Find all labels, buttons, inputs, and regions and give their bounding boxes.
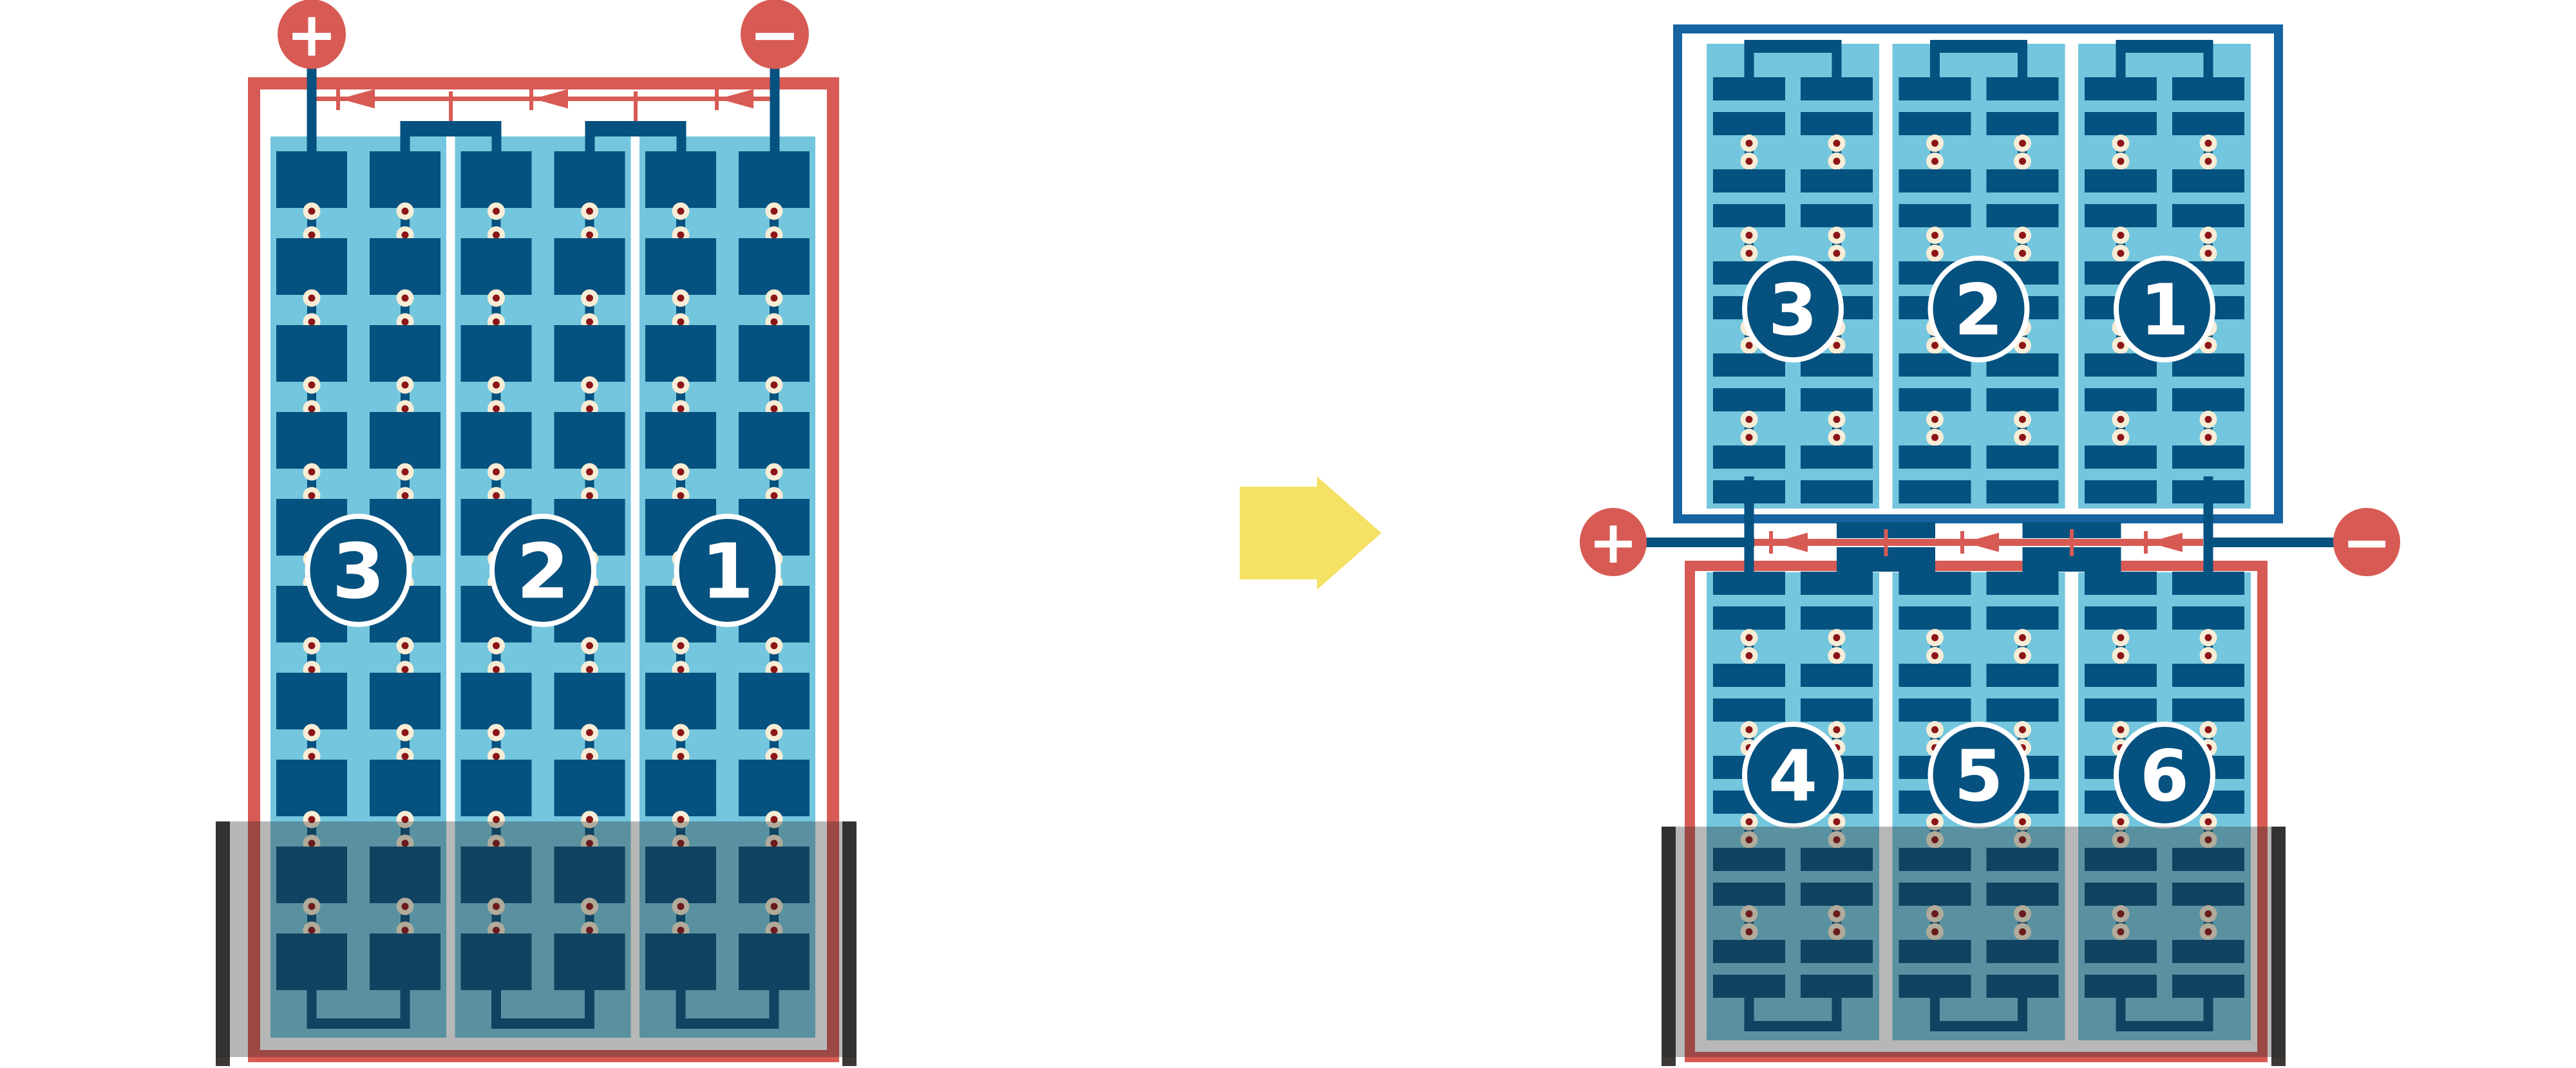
solder-dot-core (493, 642, 500, 650)
string-label: 3 (1745, 258, 1841, 360)
solar-half-cell (1713, 169, 1785, 192)
solar-cell (461, 151, 532, 208)
solar-half-cell (1987, 169, 2059, 192)
diode-cathode-bar (2144, 531, 2148, 554)
solder-dot-core (677, 232, 685, 239)
solder-dot-core (1746, 232, 1753, 239)
solar-half-cell (1801, 388, 1873, 411)
solar-cell (645, 412, 716, 469)
solder-dot-core (2019, 158, 2026, 165)
solder-dot-core (402, 295, 409, 302)
solder-dot-core (771, 406, 778, 413)
bridge-leg (585, 136, 595, 153)
solder-dot-core (1931, 416, 1938, 423)
solar-half-cell (1899, 664, 1971, 687)
solar-half-cell (1801, 77, 1873, 100)
solder-dot-core (2205, 140, 2212, 147)
solder-dot-core (2117, 342, 2125, 349)
solder-dot-core (2019, 818, 2026, 825)
solar-half-cell (1987, 664, 2059, 687)
solder-dot-core (402, 642, 409, 650)
string-interconnect-bridge (1930, 40, 2027, 53)
string-label-number: 4 (1768, 735, 1818, 818)
solar-cell (370, 412, 440, 469)
solder-dot-core (677, 469, 685, 476)
diagram-stage: 321+−321456+− (0, 0, 2576, 1068)
solar-half-cell (2085, 698, 2157, 722)
solar-half-cell (1987, 698, 2059, 722)
solar-cell (739, 325, 810, 382)
solder-dot-core (2117, 416, 2125, 423)
solar-cell (276, 412, 347, 469)
positive-terminal: + (1580, 508, 1647, 577)
solder-dot-core (402, 469, 409, 476)
solar-half-cell (1801, 480, 1873, 503)
solder-dot-core (493, 232, 500, 239)
solar-half-cell (1713, 698, 1785, 722)
negative-terminal-glyph: − (749, 0, 800, 70)
solder-dot-core (2117, 250, 2125, 257)
solder-dot-core (308, 666, 316, 673)
solder-dot-core (402, 208, 409, 215)
bridge-leg (2204, 52, 2213, 77)
solder-dot-core (586, 319, 593, 326)
solder-dot-core (493, 469, 500, 476)
string-label: 4 (1745, 724, 1841, 826)
bridge-leg (2116, 52, 2126, 77)
solder-dot-core (677, 406, 685, 413)
solar-half-cell (1801, 572, 1873, 595)
solder-dot-core (2117, 232, 2125, 239)
bypass-diode-icon (1769, 531, 1808, 554)
solar-cell (276, 151, 347, 208)
solder-dot-core (1746, 158, 1753, 165)
string-label: 5 (1931, 724, 2027, 826)
solder-dot-core (677, 753, 685, 760)
solder-dot-core (2117, 818, 2125, 825)
diode-cathode-bar (1960, 531, 1964, 554)
diode-cathode-bar (1769, 531, 1773, 554)
string-label-number: 3 (332, 527, 384, 615)
solder-dot-core (1746, 652, 1753, 659)
solder-dot-core (308, 208, 316, 215)
solar-cell (276, 325, 347, 382)
solar-cell (461, 325, 532, 382)
solder-dot-core (2205, 434, 2212, 441)
solder-dot-core (493, 406, 500, 413)
solar-half-cell (2085, 572, 2157, 595)
string-label: 2 (492, 516, 594, 624)
solder-dot-core (677, 295, 685, 302)
solder-dot-core (586, 492, 593, 500)
bridge-leg (492, 136, 502, 153)
shade-overlay-right (1662, 827, 2286, 1066)
solder-dot-core (493, 492, 500, 500)
solar-cell (645, 151, 716, 208)
positive-terminal-glyph: + (286, 0, 337, 70)
solder-dot-core (308, 295, 316, 302)
solar-cell (645, 760, 716, 816)
solar-half-cell (1899, 698, 1971, 722)
solder-dot-core (493, 666, 500, 673)
solar-half-cell (1801, 698, 1873, 722)
string-label-number: 2 (1954, 269, 2003, 351)
solar-half-cell (2172, 77, 2244, 100)
string-interconnect-bridge (585, 121, 687, 136)
solder-dot-core (2117, 434, 2125, 441)
bridge-leg (1832, 52, 1842, 77)
solder-dot-core (1833, 158, 1841, 165)
solder-dot-core (1833, 232, 1841, 239)
solar-cell (554, 760, 625, 816)
solar-cell (645, 673, 716, 729)
solder-dot-core (493, 382, 500, 389)
solder-dot-core (1833, 818, 1841, 825)
solar-half-cell (1987, 572, 2059, 595)
solar-half-cell (2172, 445, 2244, 469)
solder-dot-core (308, 382, 316, 389)
solder-dot-core (308, 753, 316, 760)
solar-half-cell (1987, 388, 2059, 411)
diagram-canvas: 321+−321456+− (0, 0, 2576, 1068)
string-interconnect-bridge (2116, 40, 2213, 53)
solder-dot-core (2205, 818, 2212, 825)
solar-half-cell (2085, 445, 2157, 469)
solder-dot-core (1833, 140, 1841, 147)
solar-half-cell (2172, 698, 2244, 722)
solder-dot-core (1931, 250, 1938, 257)
solder-dot-core (771, 666, 778, 673)
solar-half-cell (1987, 606, 2059, 630)
solder-dot-core (1833, 434, 1841, 441)
solar-half-cell (1899, 77, 1971, 100)
solder-dot-core (308, 319, 316, 326)
solder-dot-core (586, 666, 593, 673)
solder-dot-core (771, 469, 778, 476)
solder-dot-core (1931, 652, 1938, 659)
solar-half-cell (1899, 606, 1971, 630)
solder-dot-core (2117, 634, 2125, 641)
solder-dot-core (2205, 634, 2212, 641)
solder-dot-core (1931, 818, 1938, 825)
solder-dot-core (2205, 158, 2212, 165)
solar-half-cell (1899, 169, 1971, 192)
solar-cell (645, 238, 716, 295)
solder-dot-core (2205, 232, 2212, 239)
solder-dot-core (2019, 634, 2026, 641)
solar-half-cell (1713, 77, 1785, 100)
string-interconnect-bridge (401, 121, 502, 136)
solar-cell (370, 673, 440, 729)
diode-cathode-bar (529, 88, 533, 110)
solar-half-cell (2172, 664, 2244, 687)
negative-terminal-wire (770, 64, 780, 153)
string-label-number: 5 (1954, 735, 2003, 818)
solder-dot-core (1746, 342, 1753, 349)
solar-half-cell (2085, 112, 2157, 135)
negative-terminal-wire (2208, 538, 2334, 547)
solder-dot-core (493, 208, 500, 215)
solder-dot-core (1931, 140, 1938, 147)
string-label-number: 3 (1768, 269, 1818, 351)
solar-cell (370, 760, 440, 816)
solar-cell (370, 151, 440, 208)
solder-dot-core (586, 753, 593, 760)
solar-half-cell (1987, 77, 2059, 100)
transition-arrow (1240, 476, 1381, 590)
solar-half-cell (1899, 112, 1971, 135)
solar-half-cell (2085, 77, 2157, 100)
solder-dot-core (402, 666, 409, 673)
solar-half-cell (2085, 169, 2157, 192)
solar-half-cell (1899, 388, 1971, 411)
solar-half-cell (2172, 112, 2244, 135)
solar-half-cell (1899, 445, 1971, 469)
solar-cell (739, 151, 810, 208)
solder-dot-core (2019, 434, 2026, 441)
solder-dot-core (1746, 818, 1753, 825)
solar-cell (276, 760, 347, 816)
solder-dot-core (1746, 634, 1753, 641)
bridge-leg (1745, 52, 1754, 77)
solder-dot-core (308, 729, 316, 736)
solar-cell (276, 673, 347, 729)
solar-half-cell (1713, 204, 1785, 227)
solar-half-cell (1713, 606, 1785, 630)
solder-dot-core (1931, 232, 1938, 239)
solar-half-cell (1899, 572, 1971, 595)
solder-dot-core (2205, 250, 2212, 257)
bypass-diode-icon (2144, 531, 2183, 554)
solder-dot-core (402, 492, 409, 500)
string-label: 6 (2116, 724, 2213, 826)
solar-half-cell (2172, 388, 2244, 411)
solder-dot-core (771, 729, 778, 736)
solar-half-cell (1801, 112, 1873, 135)
diode-triangle (1773, 533, 1808, 552)
solar-cell (554, 238, 625, 295)
bridge-leg (677, 136, 687, 153)
solder-dot-core (677, 666, 685, 673)
bypass-diode-icon (1960, 531, 1999, 554)
negative-terminal-glyph: − (2342, 508, 2391, 577)
solder-dot-core (2117, 140, 2125, 147)
solder-dot-core (493, 319, 500, 326)
right-module-top-half: 321 (1673, 24, 2283, 538)
solder-dot-core (1746, 250, 1753, 257)
solder-dot-core (1833, 250, 1841, 257)
solder-dot-core (402, 232, 409, 239)
diode-cathode-bar (715, 88, 719, 110)
solar-cell (370, 325, 440, 382)
solder-dot-core (2019, 652, 2026, 659)
shade-overlay (1662, 827, 2286, 1057)
solder-dot-core (1833, 634, 1841, 641)
solder-dot-core (677, 729, 685, 736)
solar-cell (739, 412, 810, 469)
diode-triangle (1964, 533, 1999, 552)
solar-half-cell (2172, 169, 2244, 192)
solder-dot-core (308, 492, 316, 500)
solar-cell (554, 673, 625, 729)
solar-cell (461, 238, 532, 295)
solar-half-cell (2172, 606, 2244, 630)
solder-dot-core (771, 295, 778, 302)
solder-dot-core (402, 382, 409, 389)
string-label-number: 1 (701, 527, 753, 615)
solar-cell (739, 673, 810, 729)
solder-dot-core (1931, 726, 1938, 733)
solder-dot-core (2019, 140, 2026, 147)
string-label-number: 6 (2140, 735, 2190, 818)
string-label: 1 (2116, 258, 2213, 360)
shade-overlay-left (216, 821, 857, 1066)
solder-dot-core (1931, 342, 1938, 349)
diode-junction-tick (634, 91, 638, 124)
solar-cell (276, 238, 347, 295)
positive-terminal-wire (307, 64, 317, 153)
shade-overlay (216, 821, 857, 1057)
solder-dot-core (308, 469, 316, 476)
solder-dot-core (308, 642, 316, 650)
solder-dot-core (493, 729, 500, 736)
solar-half-cell (1899, 480, 1971, 503)
solder-dot-core (586, 208, 593, 215)
solder-dot-core (586, 469, 593, 476)
solder-dot-core (308, 232, 316, 239)
solder-dot-core (2019, 250, 2026, 257)
solder-dot-core (402, 729, 409, 736)
string-label: 2 (1931, 258, 2027, 360)
negative-terminal: − (2333, 508, 2400, 577)
diode-junction-tick (1884, 529, 1888, 556)
solder-dot-core (1931, 634, 1938, 641)
solar-half-cell (1713, 664, 1785, 687)
solar-half-cell (1713, 112, 1785, 135)
solder-dot-core (2205, 416, 2212, 423)
solder-dot-core (1746, 416, 1753, 423)
solder-dot-core (771, 319, 778, 326)
string-label: 1 (677, 516, 779, 624)
solar-half-cell (1801, 606, 1873, 630)
solder-dot-core (308, 406, 316, 413)
solar-cell (739, 760, 810, 816)
solar-half-cell (1987, 480, 2059, 503)
solar-half-cell (2085, 480, 2157, 503)
diode-junction-tick (449, 91, 453, 124)
positive-terminal: + (278, 0, 346, 70)
solder-dot-core (2019, 342, 2026, 349)
solder-dot-core (586, 642, 593, 650)
solder-dot-core (586, 232, 593, 239)
solder-dot-core (2117, 652, 2125, 659)
solder-dot-core (771, 753, 778, 760)
bridge-leg (401, 136, 410, 153)
solar-half-cell (1801, 204, 1873, 227)
solar-cell (461, 760, 532, 816)
solar-half-cell (1801, 664, 1873, 687)
solar-half-cell (1987, 445, 2059, 469)
solar-half-cell (2085, 204, 2157, 227)
bridge-leg (1930, 52, 1940, 77)
solder-dot-core (493, 295, 500, 302)
solder-dot-core (1931, 158, 1938, 165)
solder-dot-core (586, 406, 593, 413)
solar-cell (554, 325, 625, 382)
solder-dot-core (402, 753, 409, 760)
solder-dot-core (586, 295, 593, 302)
solder-dot-core (2205, 342, 2212, 349)
solar-half-cell (1801, 169, 1873, 192)
solder-dot-core (1746, 140, 1753, 147)
solder-dot-core (586, 729, 593, 736)
diode-cathode-bar (336, 88, 340, 110)
solder-dot-core (1833, 652, 1841, 659)
solder-dot-core (1931, 434, 1938, 441)
solder-dot-core (677, 319, 685, 326)
solar-cell (370, 238, 440, 295)
solder-dot-core (1833, 726, 1841, 733)
solder-dot-core (402, 319, 409, 326)
solar-half-cell (1987, 204, 2059, 227)
diode-triangle (2148, 533, 2183, 552)
solar-cell (739, 238, 810, 295)
solder-dot-core (2117, 726, 2125, 733)
solar-half-cell (1801, 445, 1873, 469)
negative-terminal-wire (2204, 476, 2213, 579)
solder-dot-core (771, 492, 778, 500)
solar-half-cell (2172, 204, 2244, 227)
solar-half-cell (2085, 388, 2157, 411)
solar-half-cell (2085, 664, 2157, 687)
solar-half-cell (1899, 204, 1971, 227)
solar-half-cell (1713, 445, 1785, 469)
solder-dot-core (2019, 416, 2026, 423)
solder-dot-core (677, 492, 685, 500)
solder-dot-core (2205, 726, 2212, 733)
solar-half-cell (2085, 606, 2157, 630)
solder-dot-core (771, 642, 778, 650)
solder-dot-core (1746, 726, 1753, 733)
solar-cell (554, 151, 625, 208)
solder-dot-core (1833, 416, 1841, 423)
solar-cell (461, 412, 532, 469)
solder-dot-core (2019, 726, 2026, 733)
solar-cell (461, 673, 532, 729)
solder-dot-core (1746, 434, 1753, 441)
solder-dot-core (2117, 158, 2125, 165)
string-label: 3 (308, 516, 410, 624)
solder-dot-core (1833, 342, 1841, 349)
solder-dot-core (771, 208, 778, 215)
solder-dot-core (586, 382, 593, 389)
string-interconnect-bridge (1745, 40, 1842, 53)
diode-junction-tick (2070, 529, 2074, 556)
solder-dot-core (677, 642, 685, 650)
positive-terminal-glyph: + (1588, 508, 1638, 577)
solder-dot-core (402, 406, 409, 413)
string-label-number: 2 (516, 527, 569, 615)
negative-terminal: − (741, 0, 809, 70)
solder-dot-core (493, 753, 500, 760)
solder-dot-core (677, 382, 685, 389)
solar-half-cell (1713, 388, 1785, 411)
positive-terminal-wire (1745, 476, 1754, 579)
solder-dot-core (677, 208, 685, 215)
solder-dot-core (771, 382, 778, 389)
solder-dot-core (2205, 652, 2212, 659)
solar-cell (554, 412, 625, 469)
